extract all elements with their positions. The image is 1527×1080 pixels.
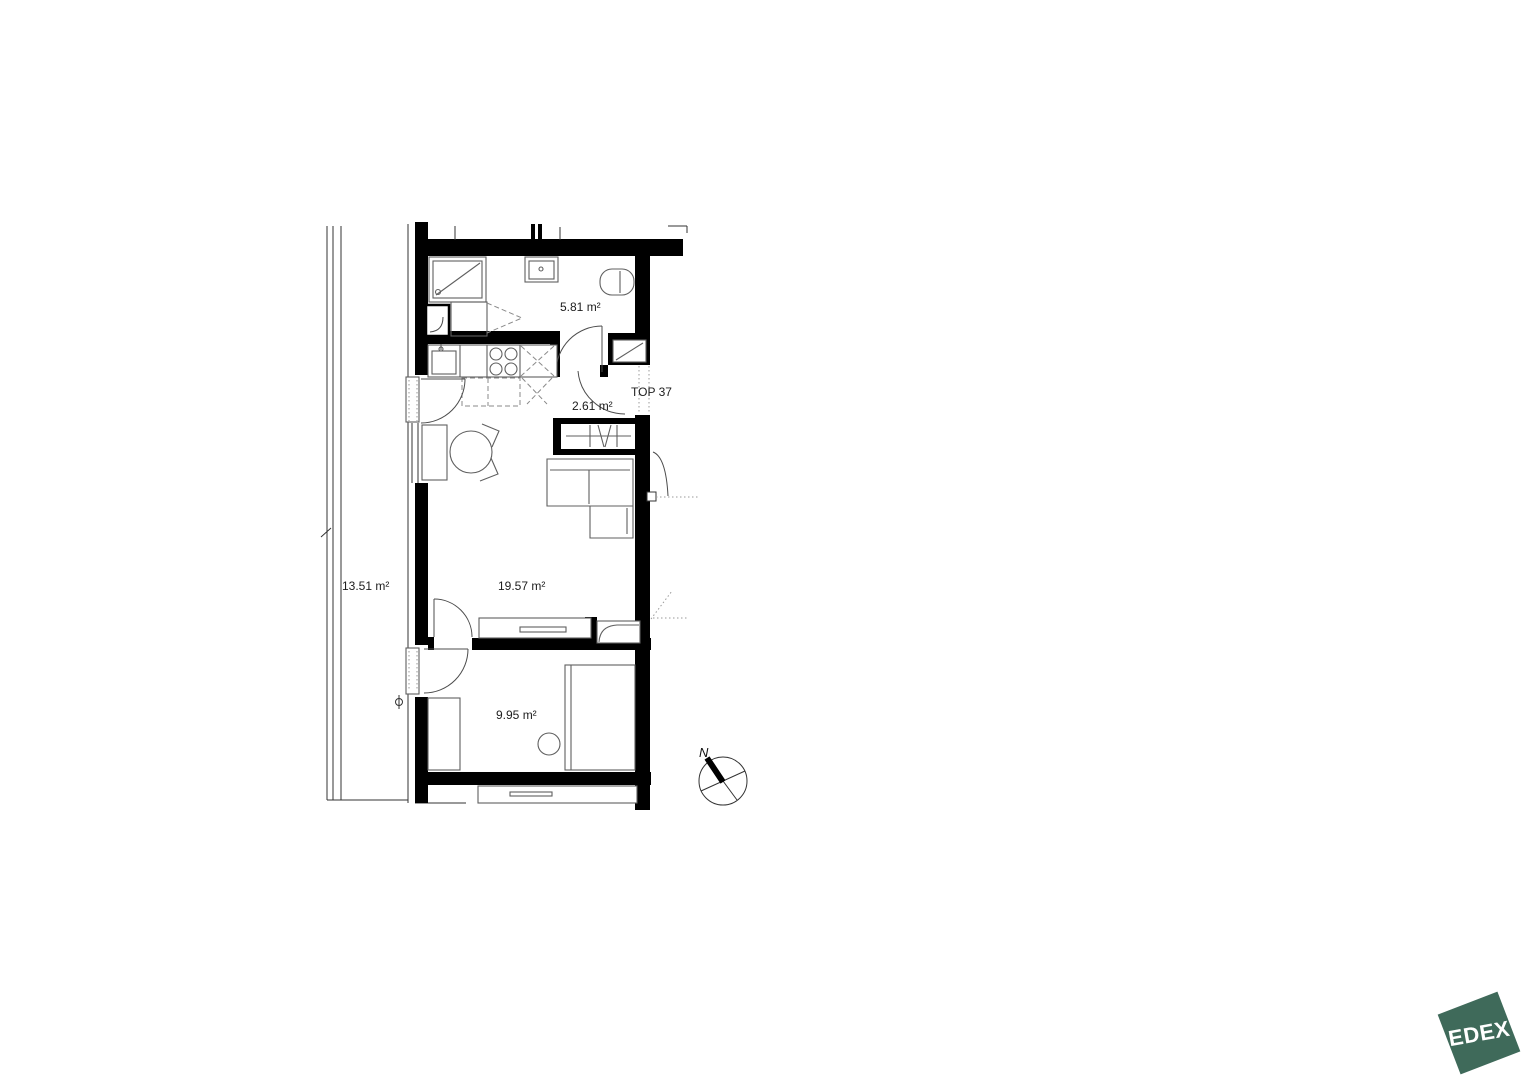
cabinet-projection <box>487 303 522 333</box>
washing-machine <box>451 302 487 336</box>
dining-table <box>450 431 492 473</box>
wall-segment <box>428 637 434 650</box>
area-label-hall: 2.61 m² <box>572 399 613 413</box>
area-label-balcony: 13.51 m² <box>342 579 389 593</box>
area-label-living: 19.57 m² <box>498 579 545 593</box>
wall-segment <box>553 418 636 424</box>
sofa <box>547 459 633 538</box>
floorplan-drawing: 5.81 m² 2.61 m² TOP 37 19.57 m² 9.95 m² … <box>0 0 1527 1080</box>
floorplan-page: 5.81 m² 2.61 m² TOP 37 19.57 m² 9.95 m² … <box>0 0 1527 1080</box>
compass-needle <box>707 758 723 782</box>
area-label-bedroom: 9.95 m² <box>496 708 537 722</box>
wall-segment <box>635 415 650 810</box>
section-mark <box>396 695 403 709</box>
wall-segment <box>553 449 636 455</box>
wall-segment <box>415 483 428 645</box>
kitchen <box>428 344 557 406</box>
wall-ticks <box>455 224 687 241</box>
north-label: N <box>699 745 709 760</box>
walls <box>415 222 683 810</box>
living-room <box>422 424 640 643</box>
upper-cabinet-projection <box>462 378 552 406</box>
stool <box>538 733 560 755</box>
company-logo: EDEX <box>1437 991 1521 1074</box>
bed <box>565 665 635 770</box>
toilet <box>600 269 634 295</box>
wall-segment <box>600 365 608 377</box>
area-label-bathroom: 5.81 m² <box>560 300 601 314</box>
wall-segment <box>428 772 651 785</box>
compass: N <box>699 745 747 805</box>
hall-wardrobe <box>566 425 631 447</box>
neighbour-sideboard <box>478 786 637 803</box>
wall-niche <box>597 621 640 643</box>
shaft <box>426 305 449 336</box>
bedroom-wardrobe <box>428 698 460 770</box>
cabinet <box>422 425 447 480</box>
wall-segment <box>415 222 428 375</box>
sideboard <box>479 618 591 638</box>
wall-segment <box>425 239 683 256</box>
unit-label: TOP 37 <box>631 385 672 399</box>
wall-segment <box>415 697 428 803</box>
